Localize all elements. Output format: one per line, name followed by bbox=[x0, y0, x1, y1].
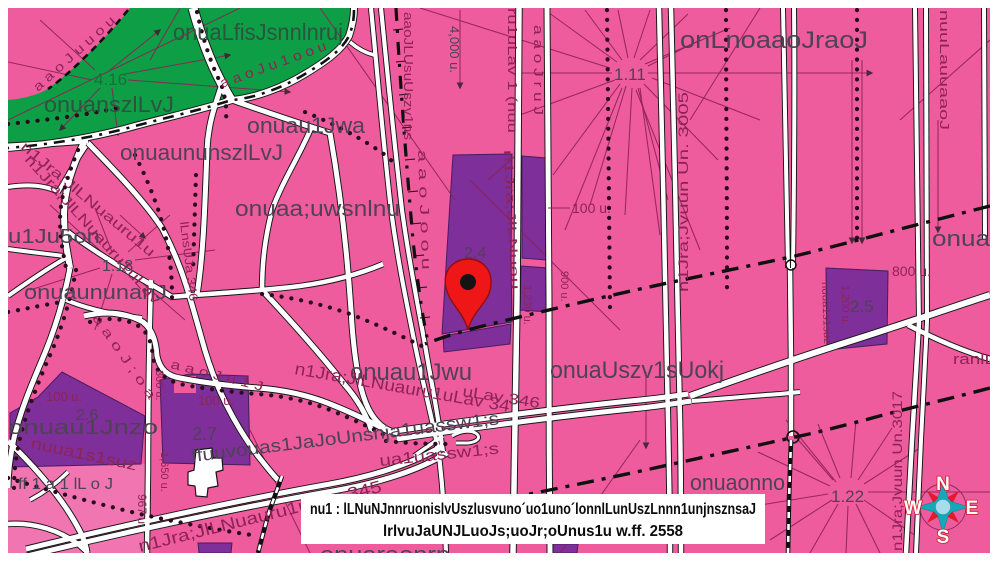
svg-text:4,000 u.: 4,000 u. bbox=[447, 26, 462, 73]
svg-text:onuau1Jwa: onuau1Jwa bbox=[247, 113, 366, 138]
svg-text:100 u.: 100 u. bbox=[572, 200, 611, 216]
svg-text:1,200 u.: 1,200 u. bbox=[839, 285, 851, 325]
svg-text:onuanszlLvJ: onuanszlLvJ bbox=[44, 92, 174, 117]
svg-text:ru1uLav 1 (nuu: ru1uLav 1 (nuu bbox=[505, 8, 520, 133]
svg-text:W: W bbox=[904, 498, 922, 519]
svg-text:aaoJLUsuUszv1ns: aaoJLUsuUszv1ns bbox=[401, 12, 416, 141]
svg-text:nu1 : lLNuNJnnruonislvUszlusvu: nu1 : lLNuNJnnruonislvUszlusvuno´uo1uno´… bbox=[310, 501, 756, 518]
svg-text:nuuLauuaaoJ: nuuLauuaaoJ bbox=[937, 10, 952, 130]
svg-text:100 u.: 100 u. bbox=[46, 389, 82, 404]
svg-text:1,650 u.: 1,650 u. bbox=[158, 452, 170, 492]
svg-text:4.16: 4.16 bbox=[94, 70, 127, 89]
svg-text:n1Jra;Jvuun Un. 3005: n1Jra;Jvuun Un. 3005 bbox=[675, 92, 691, 292]
svg-text:n1Jra;Jvuun Un.3017: n1Jra;Jvuun Un.3017 bbox=[889, 391, 905, 551]
svg-text:ranlL: ranlL bbox=[953, 351, 995, 368]
svg-text:E: E bbox=[966, 498, 979, 519]
svg-text:onua: onua bbox=[932, 226, 991, 251]
svg-text:a a o J r u J: a a o J r u J bbox=[531, 25, 546, 115]
svg-text:onuaununszlLvJ: onuaununszlLvJ bbox=[120, 140, 283, 165]
svg-text:ff 1 a 1 lL o J: ff 1 a 1 lL o J bbox=[18, 476, 113, 493]
svg-text:N: N bbox=[936, 474, 950, 495]
svg-text:2.6: 2.6 bbox=[76, 407, 98, 424]
svg-text:967 u.: 967 u. bbox=[135, 494, 149, 527]
svg-text:1,230 u.: 1,230 u. bbox=[521, 285, 533, 325]
svg-text:onuaUszv1sUokj: onuaUszv1sUokj bbox=[550, 357, 724, 384]
svg-text:onuaa;uwsnlnu: onuaa;uwsnlnu bbox=[235, 196, 400, 221]
svg-text:2.5: 2.5 bbox=[850, 297, 874, 316]
svg-text:1.22: 1.22 bbox=[831, 487, 864, 506]
svg-text:onuaonno: onuaonno bbox=[690, 470, 785, 495]
svg-text:lrlvuJaUNJLuoJs;uoJr;oUnus1u w: lrlvuJaUNJLuoJs;uoJr;oUnus1u w.ff. 2558 bbox=[383, 523, 683, 540]
svg-text:1.11: 1.11 bbox=[614, 65, 646, 84]
svg-text:900 u.: 900 u. bbox=[558, 271, 570, 302]
svg-text:S: S bbox=[937, 527, 950, 548]
svg-text:onLnoaaoJraoJ: onLnoaaoJraoJ bbox=[680, 27, 868, 54]
svg-text:100 u.: 100 u. bbox=[198, 393, 234, 408]
svg-text:2.7: 2.7 bbox=[192, 424, 217, 444]
svg-text:nuua1s1suz: nuua1s1suz bbox=[819, 282, 833, 344]
svg-text:800 u.: 800 u. bbox=[892, 263, 931, 279]
